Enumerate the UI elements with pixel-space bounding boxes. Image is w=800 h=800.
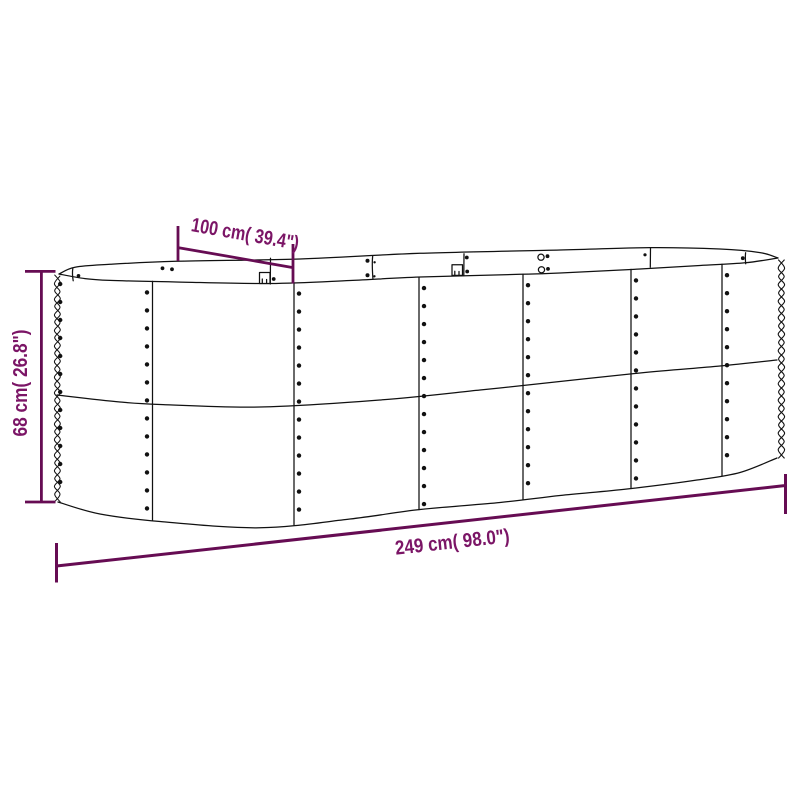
svg-text:68 cm( 26.8"): 68 cm( 26.8") [10,330,32,437]
